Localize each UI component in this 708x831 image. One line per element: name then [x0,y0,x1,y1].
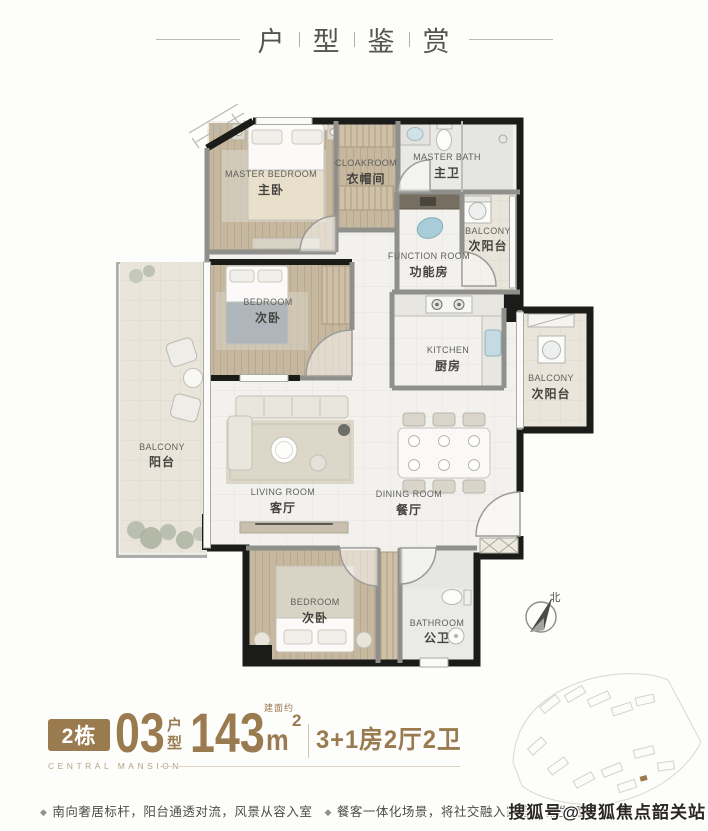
room-label-master-bedroom-en: MASTER BEDROOM [225,169,317,179]
info-divider [308,724,309,758]
page: 户 型 鉴 赏 [0,0,708,831]
unit-number: 03 [115,705,165,761]
room-label-bedroom2-en: BEDROOM [243,297,292,307]
room-label-living-room-en: LIVING ROOM [251,487,315,497]
room-label-kitchen-cn: 厨房 [435,358,461,373]
room-label-bedroom3-en: BEDROOM [290,597,339,607]
floor-plan: MASTER BEDROOM 主卧 CLOAKROOM 衣帽间 MASTER B… [0,0,708,831]
room-label-bedroom2-cn: 次卧 [255,310,281,325]
feature-list: ◆南向奢居标杆，阳台通透对流，风景从容入室 ◆餐客一体化场景，将社交融入家庭日常… [40,801,584,820]
area-number: 143 [190,705,265,761]
room-label-function-room-cn: 功能房 [409,264,448,279]
room-label-master-bath-cn: 主卫 [434,165,460,180]
room-label-kitchen-en: KITCHEN [427,345,469,355]
site-plan-sketch [513,674,701,805]
room-label-dining-room-en: DINING ROOM [376,489,442,499]
room-label-function-room-en: FUNCTION ROOM [388,251,470,261]
room-label-living-room-cn: 客厅 [269,500,296,515]
unit-type-label: 户型 [166,717,181,753]
room-label-bedroom3-cn: 次卧 [302,610,328,625]
room-label-balcony-main-en: BALCONY [139,442,185,452]
room-label-balcony-north-en: BALCONY [465,226,511,236]
feature-text: 南向奢居标杆，阳台通透对流，风景从容入室 [52,805,312,819]
room-label-master-bath-en: MASTER BATH [413,152,481,162]
room-label-bathroom-cn: 公卫 [424,631,450,645]
brand-rule [160,766,460,767]
compass-icon: 北 [526,591,561,632]
room-label-cloakroom-en: CLOAKROOM [335,158,397,168]
room-label-dining-room-cn: 餐厅 [396,502,422,517]
room-label-balcony-east-en: BALCONY [528,373,574,383]
room-label-cloakroom-cn: 衣帽间 [346,171,385,186]
watermark-text: 搜狐号@搜狐焦点韶关站 [508,798,706,823]
area-superscript: 2 [292,712,301,729]
room-label-balcony-east-cn: 次阳台 [531,386,570,401]
diamond-bullet-icon: ◆ [40,807,47,817]
area-unit: m [266,726,289,756]
building-badge: 2栋 [48,719,110,751]
room-label-master-bedroom-cn: 主卧 [258,182,284,197]
room-label-bathroom-en: BATHROOM [410,618,465,628]
north-label: 北 [550,591,561,604]
diamond-bullet-icon: ◆ [324,807,331,817]
entry-mat [480,538,518,553]
layout-spec: 3+1房2厅2卫 [316,728,462,753]
room-label-balcony-north-cn: 次阳台 [468,238,507,253]
area-note: 建面约 [264,701,294,714]
feature-item: ◆南向奢居标杆，阳台通透对流，风景从容入室 [40,801,312,820]
room-label-balcony-main-cn: 阳台 [149,454,175,469]
